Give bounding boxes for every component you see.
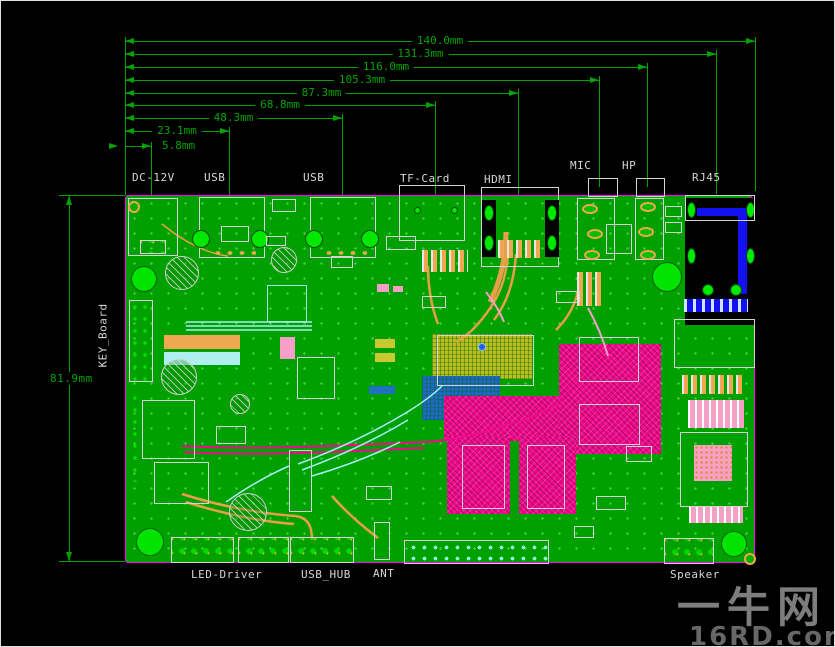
rj45-lower-outline — [674, 319, 755, 368]
dimension-label: 23.1mm — [152, 124, 202, 137]
port-label-usb1: USB — [204, 171, 225, 184]
via-marker — [478, 343, 486, 351]
signal-trace — [518, 404, 558, 422]
arrow-left-icon — [125, 102, 134, 108]
component-outline — [366, 486, 392, 500]
capacitor — [161, 359, 197, 395]
jack-pad — [640, 250, 656, 260]
pink-component — [393, 286, 403, 292]
signal-trace — [186, 322, 312, 330]
arrow-right-icon — [220, 128, 229, 134]
component-outline — [596, 496, 626, 510]
port-label-speaker: Speaker — [670, 568, 720, 581]
jack-pad — [587, 229, 603, 239]
jack-pad — [584, 250, 600, 260]
capacitor — [230, 394, 250, 414]
fiducial-hole — [128, 201, 140, 213]
dimension-label: 48.3mm — [209, 111, 259, 124]
pink-component — [280, 337, 295, 359]
rj45-pad — [702, 284, 714, 296]
cpu-outline — [437, 335, 534, 386]
keyboard-port-label: KEY_Board — [97, 306, 110, 368]
orange-component — [164, 335, 240, 349]
component-outline — [221, 226, 249, 242]
arrow-outside-icon — [109, 143, 118, 149]
extension-line — [518, 89, 519, 197]
rj45-pad — [746, 248, 755, 264]
edge-pad-column — [130, 392, 139, 482]
component-outline — [556, 291, 580, 303]
arrow-left-icon — [125, 64, 134, 70]
tf-pad — [414, 207, 421, 214]
pad-comb — [682, 375, 745, 394]
arrow-right-icon — [509, 90, 518, 96]
small-component-outline — [665, 222, 682, 233]
port-label-rj45: RJ45 — [692, 171, 721, 184]
port-label-tfcard: TF-Card — [400, 172, 450, 185]
rj45-pad-row — [684, 299, 748, 312]
watermark-en: 16RD.com — [689, 624, 835, 647]
resistor-array — [422, 250, 468, 272]
arrow-left-icon — [125, 77, 134, 83]
usb-mount-pad — [192, 230, 210, 248]
extension-line — [125, 37, 126, 195]
mounting-hole — [652, 262, 682, 292]
fpc-connector — [404, 540, 549, 564]
small-component-outline — [665, 206, 682, 217]
hdmi-pad — [484, 205, 494, 221]
arrow-left-icon — [125, 38, 134, 44]
extension-line — [599, 76, 600, 187]
usb-hub-connector — [290, 537, 354, 563]
hdmi-pad — [547, 205, 557, 221]
extension-line — [342, 114, 343, 197]
arrow-right-icon — [333, 115, 342, 121]
arrow-down-icon — [66, 552, 72, 561]
port-label-hp: HP — [622, 159, 636, 172]
pink-component — [377, 284, 389, 292]
qfp-ic-outline — [297, 357, 335, 399]
dimension-label: 105.3mm — [334, 73, 390, 86]
arrow-left-icon — [125, 90, 134, 96]
jack-pad — [582, 204, 598, 214]
ddr-chip-outline — [527, 445, 565, 509]
hdmi-pad — [484, 235, 494, 251]
shield-outline — [267, 285, 307, 322]
dimension-label: 131.3mm — [392, 47, 448, 60]
arrow-up-icon — [66, 196, 72, 205]
jack-pad — [638, 227, 654, 237]
usb-pin-pads — [321, 246, 367, 256]
arrow-left-icon — [125, 128, 134, 134]
yellow-cap — [375, 353, 395, 362]
dimension-label: 81.9mm — [47, 372, 96, 385]
component-outline — [574, 526, 594, 538]
rj45-connector-outline — [685, 195, 755, 221]
mounting-hole — [131, 266, 157, 292]
port-label-usb2: USB — [303, 171, 324, 184]
extension-line — [229, 127, 230, 197]
component-outline — [626, 446, 652, 462]
port-label-usb-hub: USB_HUB — [301, 568, 351, 581]
rj45-pad — [730, 284, 742, 296]
ic-outline — [289, 450, 312, 512]
small-component-outline — [272, 199, 296, 212]
component-outline — [142, 400, 195, 459]
arrow-right-icon — [746, 38, 755, 44]
capacitor — [165, 256, 199, 290]
component-outline — [386, 236, 416, 250]
arrow-right-icon — [142, 143, 151, 149]
fiducial-hole — [744, 553, 756, 565]
port-label-mic: MIC — [570, 159, 591, 172]
speaker-connector — [664, 538, 714, 564]
dimension-label: 68.8mm — [255, 98, 305, 111]
ddr-chip-outline — [462, 445, 505, 509]
component-outline — [216, 426, 246, 444]
hdmi-pad — [547, 235, 557, 251]
bga-pad-grid — [694, 445, 732, 481]
arrow-right-icon — [426, 102, 435, 108]
extension-line — [59, 561, 125, 562]
capacitor — [271, 247, 297, 273]
capacitor — [229, 493, 267, 531]
copper-traces-cyan — [186, 322, 442, 502]
ddr-chip-outline — [579, 337, 639, 382]
port-label-led-driver: LED-Driver — [191, 568, 262, 581]
yellow-cap — [375, 339, 395, 348]
mounting-hole — [721, 531, 747, 557]
jack-pad — [640, 202, 656, 212]
port-label-hdmi: HDMI — [484, 173, 513, 186]
extension-line — [755, 37, 756, 191]
rj45-pad — [687, 248, 696, 264]
dc-jack-pins — [140, 240, 166, 254]
pcb-layout-screenshot: 140.0mm 131.3mm 116.0mm 105.3mm 87.3mm 6… — [0, 0, 835, 647]
keyboard-connector — [129, 300, 153, 382]
port-label-ant: ANT — [373, 567, 394, 580]
arrow-right-icon — [590, 77, 599, 83]
component-outline — [331, 256, 353, 268]
dimension-label: 5.8mm — [157, 139, 200, 152]
arrow-left-icon — [125, 51, 134, 57]
component-outline — [154, 462, 209, 504]
antenna-component — [374, 522, 390, 560]
tf-pad — [451, 207, 458, 214]
port-label-dc12v: DC-12V — [132, 171, 175, 184]
signal-trace — [332, 496, 378, 538]
dimension-label: 116.0mm — [358, 60, 414, 73]
component-outline — [266, 236, 286, 246]
arrow-left-icon — [125, 115, 134, 121]
usb-pin-pads — [210, 246, 256, 256]
arrow-right-icon — [707, 51, 716, 57]
pcb-board[interactable] — [125, 195, 755, 563]
mounting-hole — [136, 528, 164, 556]
emmc-pad-comb — [689, 507, 743, 523]
mic-jack-body — [588, 178, 618, 197]
hp-jack-body — [636, 178, 665, 197]
signal-trace — [428, 266, 438, 324]
blue-component — [369, 386, 395, 394]
emmc-pad-comb — [688, 400, 744, 428]
resistor-array — [577, 272, 602, 306]
ddr-chip-outline — [579, 404, 640, 445]
component-outline — [422, 296, 446, 308]
led-driver-connector — [171, 537, 234, 563]
component-outline — [606, 224, 632, 254]
dimension-label: 140.0mm — [412, 34, 468, 47]
connector — [238, 537, 289, 563]
hdmi-pin-comb — [498, 240, 542, 258]
extension-line — [647, 63, 648, 187]
arrow-right-icon — [638, 64, 647, 70]
